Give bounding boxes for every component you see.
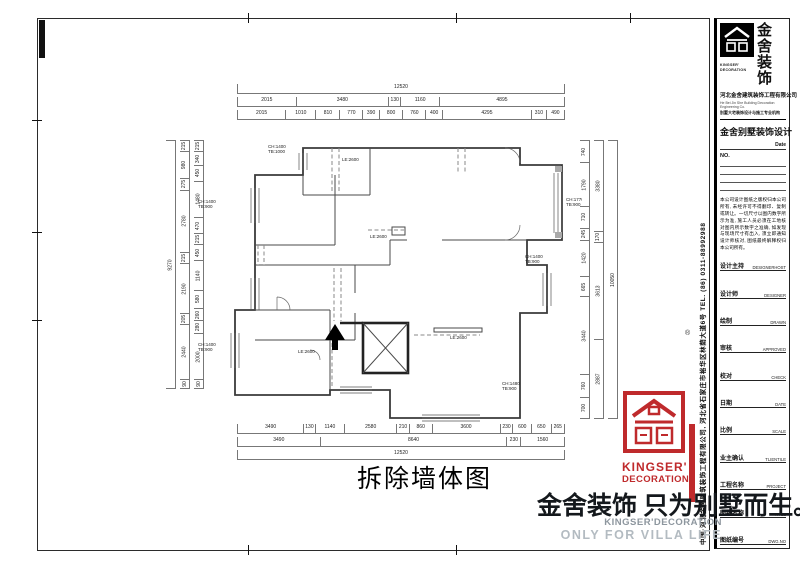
svg-text:TB:900: TB:900	[566, 202, 581, 207]
dim-chain-top-middle: 2015348013011604895	[237, 97, 565, 107]
ruled-line	[720, 166, 786, 167]
copyright-disclaimer: 本公司设计图纸之版权归本公司所有, 未经许可不得翻印、复制或转让。一切尺寸以图内…	[720, 197, 786, 252]
dimension-segment: 10050	[608, 140, 618, 418]
frame-tick	[456, 13, 457, 23]
frame-tick	[456, 545, 457, 555]
svg-text:TB:1000: TB:1000	[268, 149, 286, 154]
dimension-segment: 810	[315, 110, 339, 120]
dimension-segment: 170	[594, 231, 604, 242]
registered-mark: ®	[685, 330, 690, 337]
dimension-segment: 2015	[237, 110, 285, 120]
kingser-logo-small-icon	[720, 23, 754, 57]
dim-chain-right-middle: 338017036132887	[594, 140, 604, 419]
titleblock-field-row: 设计主持DESIGNERHOST	[720, 257, 786, 271]
dimension-segment: 215	[180, 140, 190, 151]
dimension-segment: 800	[379, 110, 403, 120]
logo-sub-en2: DECORATION	[720, 68, 754, 72]
kingser-wordmark: KINGSER'	[622, 460, 686, 474]
titleblock-logo-row: KINGSER' DECORATION 金舍 装饰	[720, 23, 786, 87]
door-arcs	[277, 148, 520, 360]
dimension-segment: 1010	[285, 110, 315, 120]
dim-chain-left-total: 9270	[166, 140, 176, 389]
dimension-segment: 215	[180, 252, 190, 263]
corner-stamp	[39, 20, 45, 58]
svg-text:TB:900: TB:900	[198, 204, 213, 209]
titleblock-field-row: 比例SCALE	[720, 421, 786, 435]
dimension-segment: 275	[180, 178, 190, 190]
dim-chain-bottom-middle: 349086402301560	[237, 437, 565, 447]
floor-plan: LE:2600LE:2600LE:2600LE:2600CH:1400TB:10…	[197, 128, 582, 428]
titleblock-field-row: 业主确认TLIENTILE	[720, 449, 786, 463]
company-name: 河北金舍建筑装饰工程有限公司	[720, 91, 786, 99]
dimension-segment: 760	[402, 110, 425, 120]
drawing-sheet: { "sheet": { "drawing_title": "拆除墙体图", "…	[0, 0, 800, 565]
svg-text:LE:2600: LE:2600	[370, 234, 387, 239]
company-subtitle: 别墅大宅装饰设计与施工专业机构	[720, 110, 786, 115]
logo-sub-en1: KINGSER'	[720, 63, 754, 67]
titleblock-field-row: 设计师DESIGNER	[720, 285, 786, 299]
logo-cn-line2: 装饰	[757, 55, 786, 87]
dimension-segment: 400	[425, 110, 442, 120]
no-label: NO.	[720, 153, 786, 159]
dimension-segment: 2440	[180, 324, 190, 379]
frame-tick	[32, 320, 42, 321]
dimension-segment: 12520	[237, 84, 564, 94]
dimension-segment: 90	[180, 379, 190, 388]
exterior-walls	[235, 148, 562, 418]
frame-tick	[32, 232, 42, 233]
dimension-segment: 205	[180, 313, 190, 324]
dimension-segment: 3480	[296, 97, 388, 107]
title-block: KINGSER' DECORATION 金舍 装饰 河北金舍建筑装饰工程有限公司…	[714, 18, 790, 549]
svg-text:LE:2600: LE:2600	[450, 335, 467, 340]
dim-chain-right-total: 10050	[608, 140, 618, 419]
dimension-segment: 1160	[400, 97, 439, 107]
frame-tick	[32, 120, 42, 121]
company-name-en: He Bei Jin She Building Decoration Engin…	[720, 101, 786, 109]
dimension-segment: 310	[531, 110, 546, 120]
dimension-segment: 4295	[442, 110, 531, 120]
titleblock-field-row: 校对CHECK	[720, 367, 786, 381]
svg-text:TB:900: TB:900	[198, 347, 213, 352]
dimension-segment: 3490	[237, 437, 320, 447]
dimension-segment: 2887	[594, 339, 604, 418]
frame-tick	[248, 545, 249, 555]
titleblock-field-row: 图纸编号DWG.NO	[720, 531, 786, 545]
date-row: Date	[720, 142, 786, 150]
svg-text:LE:2600: LE:2600	[342, 157, 359, 162]
frame-tick	[630, 13, 631, 23]
interior-walls	[255, 148, 527, 390]
svg-text:TB:900: TB:900	[525, 259, 540, 264]
dimension-segment: 9270	[166, 140, 176, 388]
kingser-red-logo: KINGSER' DECORATION	[622, 390, 686, 485]
svg-text:TB:900: TB:900	[502, 386, 517, 391]
dimension-segment: 3380	[594, 140, 604, 231]
decoration-wordmark: DECORATION	[622, 474, 686, 485]
dim-chain-left-middle: 21598027527802152190205244090	[180, 140, 190, 389]
dim-chain-top-total: 12520	[237, 84, 565, 94]
dimension-segment: 230	[506, 437, 520, 447]
ruled-line	[720, 182, 786, 183]
slogan-en-line2: ONLY FOR VILLA LIFE	[550, 528, 722, 542]
titleblock-field-row: 绘制DRAWN	[720, 312, 786, 326]
dimension-segment: 2780	[180, 190, 190, 252]
ruled-line	[720, 174, 786, 175]
studio-title: 金舍别墅装饰设计	[720, 125, 786, 138]
titleblock-field-row: 日期DATE	[720, 394, 786, 408]
svg-text:LE:2600: LE:2600	[298, 349, 315, 354]
dimension-segment: 4895	[439, 97, 564, 107]
dimension-segment: 130	[388, 97, 400, 107]
logo-cn-line1: 金舍	[757, 23, 786, 55]
dimension-segment: 1560	[520, 437, 564, 447]
frame-tick	[248, 13, 249, 23]
dimension-segment: 3613	[594, 242, 604, 339]
titleblock-field-row: 审核APPROVED	[720, 339, 786, 353]
divider	[720, 119, 786, 120]
company-address-strip: 中国·河北金舍建筑装饰工程有限公司, 河北省石家庄市裕华区林荫大道6号 TEL.…	[697, 24, 709, 545]
dimension-segment: 980	[180, 151, 190, 177]
ruled-line	[720, 190, 786, 191]
dimension-segment: 2015	[237, 97, 296, 107]
dimension-segment: 490	[546, 110, 564, 120]
dimension-segment: 770	[339, 110, 362, 120]
dimension-segment: 390	[362, 110, 378, 120]
kingser-logo-icon	[622, 390, 686, 454]
brand-slogan: 金舍装饰 只为别墅而生。	[537, 486, 800, 522]
entry-arrow-icon	[325, 324, 345, 350]
demolished-walls	[258, 148, 480, 386]
dimension-segment: 2190	[180, 263, 190, 313]
dim-chain-top-inner: 201510108107703908007604004295310490	[237, 110, 565, 120]
dimension-segment: 8640	[320, 437, 507, 447]
drawing-title: 拆除墙体图	[357, 459, 492, 495]
